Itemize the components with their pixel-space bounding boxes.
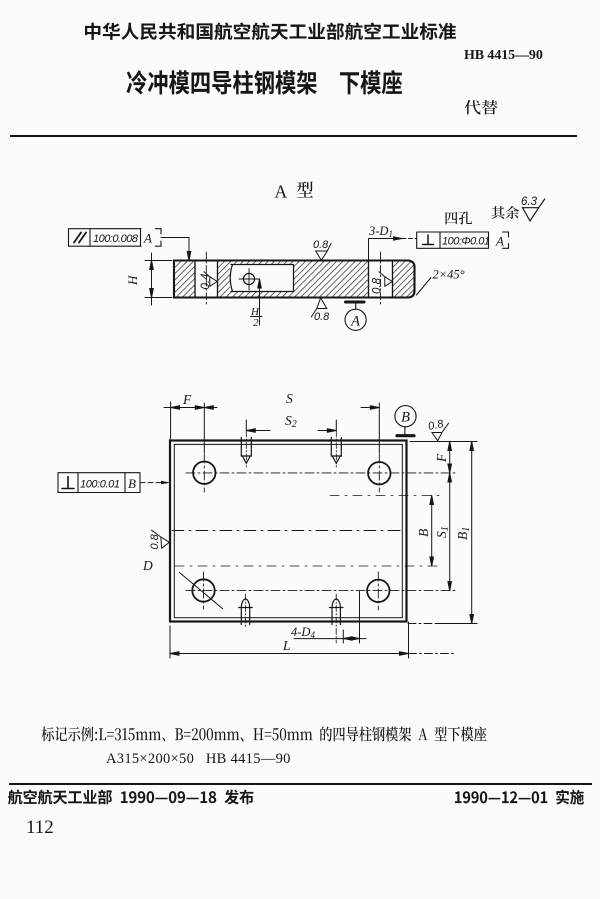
svg-text:B: B xyxy=(416,529,431,537)
svg-text:A: A xyxy=(350,313,360,329)
svg-text:L: L xyxy=(282,638,291,653)
svg-text:6.3: 6.3 xyxy=(521,196,538,208)
svg-text:H: H xyxy=(125,275,140,286)
svg-text:0.4: 0.4 xyxy=(200,274,212,290)
svg-text:2: 2 xyxy=(253,317,259,329)
svg-text:S1: S1 xyxy=(434,526,451,538)
svg-text:S: S xyxy=(286,391,293,406)
svg-text:0.8: 0.8 xyxy=(314,311,330,323)
svg-text:100:0.01: 100:0.01 xyxy=(80,479,120,491)
svg-text:100:0.008: 100:0.008 xyxy=(93,233,139,245)
svg-text:3-D1: 3-D1 xyxy=(368,224,393,239)
svg-text:B: B xyxy=(128,476,136,491)
svg-text:100:Φ0.01: 100:Φ0.01 xyxy=(442,236,490,248)
svg-text:A: A xyxy=(495,234,504,249)
svg-text:A: A xyxy=(143,231,152,246)
svg-text:B1: B1 xyxy=(455,527,472,540)
svg-text:A: A xyxy=(275,182,288,202)
svg-text:D: D xyxy=(142,558,153,573)
svg-text:0.8: 0.8 xyxy=(372,277,384,294)
svg-text:F: F xyxy=(434,453,449,463)
svg-text:0.8: 0.8 xyxy=(313,239,329,251)
svg-text:4-D4: 4-D4 xyxy=(291,625,315,640)
svg-text:2×45°: 2×45° xyxy=(433,268,465,282)
svg-text:S2: S2 xyxy=(285,413,297,430)
svg-text:B: B xyxy=(401,410,410,426)
svg-text:0.8: 0.8 xyxy=(149,533,161,549)
svg-text:F: F xyxy=(182,392,192,407)
